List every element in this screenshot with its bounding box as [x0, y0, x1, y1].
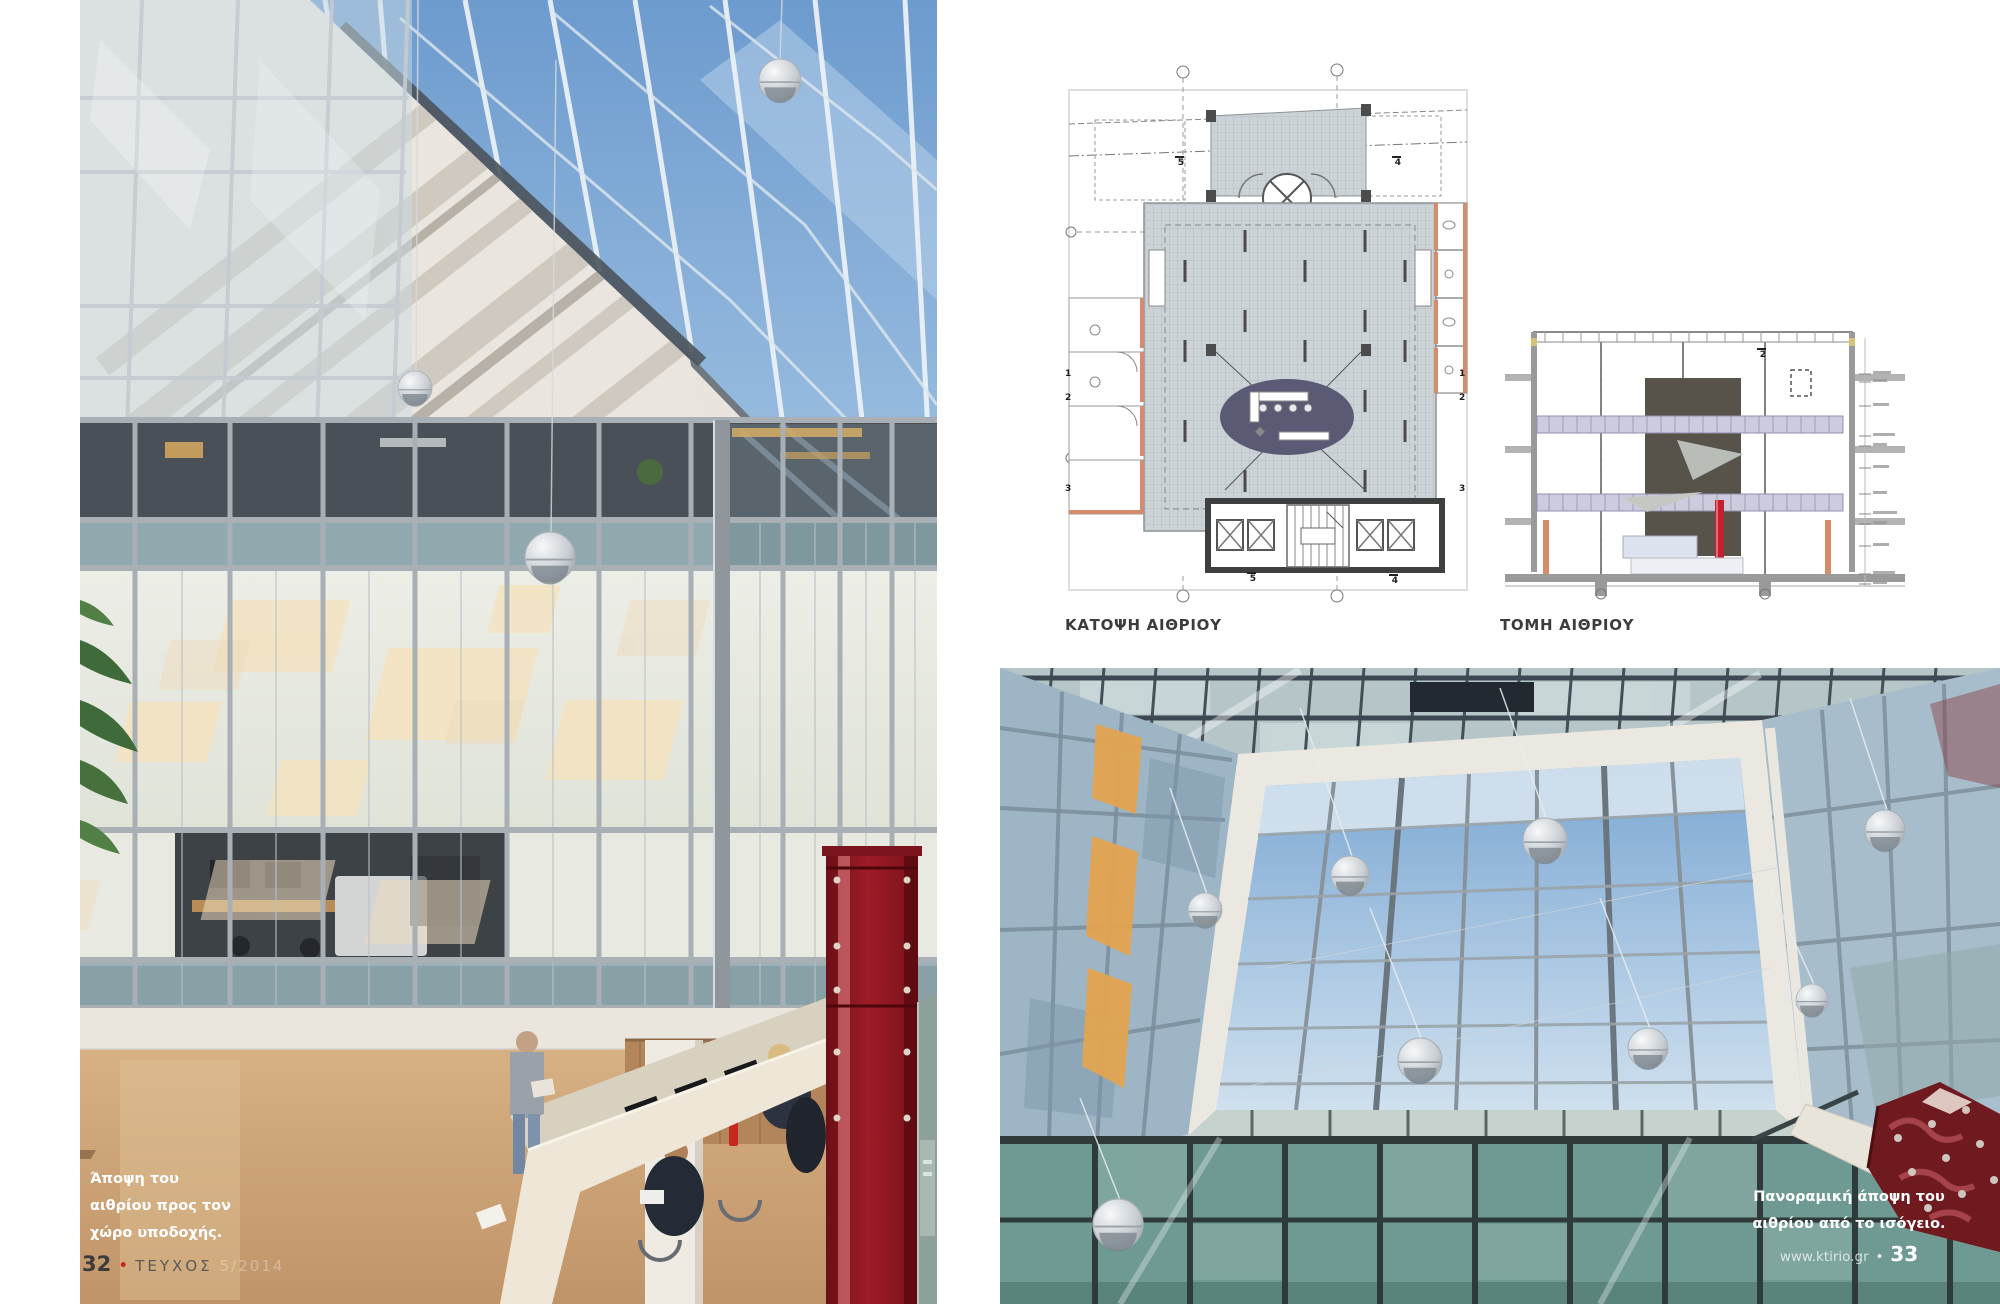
plan-marker-5-bottom: 5 — [1247, 572, 1256, 584]
glass-balustrade-band — [1188, 1110, 1806, 1136]
plan-marker-1-right: 1 — [1459, 370, 1465, 379]
website-url: www.ktirio.gr — [1780, 1249, 1869, 1265]
caption-line: αιθρίου από το ισόγειο. — [1704, 1211, 1994, 1238]
plan-marker-4-top: 4 — [1392, 156, 1401, 168]
footer-bullet: • — [118, 1256, 128, 1276]
plan-marker-2-right: 2 — [1459, 394, 1465, 403]
plan-wc-left — [1069, 298, 1144, 514]
floor-plan-figure: 5 4 1 2 3 1 2 3 5 4 — [1065, 60, 1471, 605]
section-marker-2: 2 — [1757, 348, 1766, 360]
plan-marker-3-right: 3 — [1459, 485, 1465, 494]
section-drawing — [1505, 318, 1905, 600]
floor-plan-drawing — [1065, 60, 1471, 605]
front-glass-wall — [80, 0, 412, 432]
caption-line: χώρο υποδοχής. — [90, 1220, 231, 1247]
glass-balustrade — [918, 992, 937, 1304]
section-figure: 2 — [1505, 318, 1905, 600]
plan-label: ΚΑΤΟΨΗ ΑΙΘΡΙΟΥ — [1065, 616, 1222, 634]
plan-marker-1-left: 1 — [1065, 370, 1071, 379]
caption-line: αιθρίου προς τον — [90, 1193, 231, 1220]
plan-marker-5-top: 5 — [1175, 156, 1184, 168]
right-photo-caption: Πανοραμική άποψη του αιθρίου από το ισόγ… — [1704, 1184, 1994, 1238]
red-column — [822, 846, 922, 1304]
plan-marker-4-bottom: 4 — [1389, 574, 1398, 586]
plan-atrium-floor — [1144, 203, 1436, 531]
plan-marker-2-left: 2 — [1065, 394, 1071, 403]
atrium-photo-left: Άποψη του αιθρίου προς τον χώρο υποδοχής… — [80, 0, 937, 1304]
plan-marker-3-left: 3 — [1065, 485, 1071, 494]
central-skylight — [1216, 758, 1776, 1110]
left-page-footer: 32 • ΤΕΥΧΟΣ 5/2014 — [82, 1252, 284, 1276]
plan-reception-rug — [1220, 379, 1354, 455]
issue-faint: 5/2014 — [220, 1257, 285, 1275]
footer-bullet: • — [1876, 1250, 1884, 1265]
left-photo-caption: Άποψη του αιθρίου προς τον χώρο υποδοχής… — [90, 1166, 231, 1247]
caption-line: Πανοραμική άποψη του — [1704, 1184, 1994, 1211]
caption-line: Άποψη του — [90, 1166, 231, 1193]
magazine-spread: Άποψη του αιθρίου προς τον χώρο υποδοχής… — [0, 0, 2000, 1304]
atrium-photo-right: Πανοραμική άποψη του αιθρίου από το ισόγ… — [1000, 668, 2000, 1304]
section-label: ΤΟΜΗ ΑΙΘΡΙΟΥ — [1500, 616, 1634, 634]
right-page-number: 33 — [1890, 1242, 1918, 1266]
magazine-name: ΤΕΥΧΟΣ — [135, 1257, 212, 1275]
curtain-wall — [80, 420, 937, 1008]
plan-core — [1208, 501, 1442, 570]
right-page-footer: www.ktirio.gr • 33 — [1704, 1242, 1994, 1266]
atrium-photo-art — [80, 0, 937, 1304]
left-page-number: 32 — [82, 1252, 111, 1276]
plan-wc-right — [1434, 203, 1467, 393]
